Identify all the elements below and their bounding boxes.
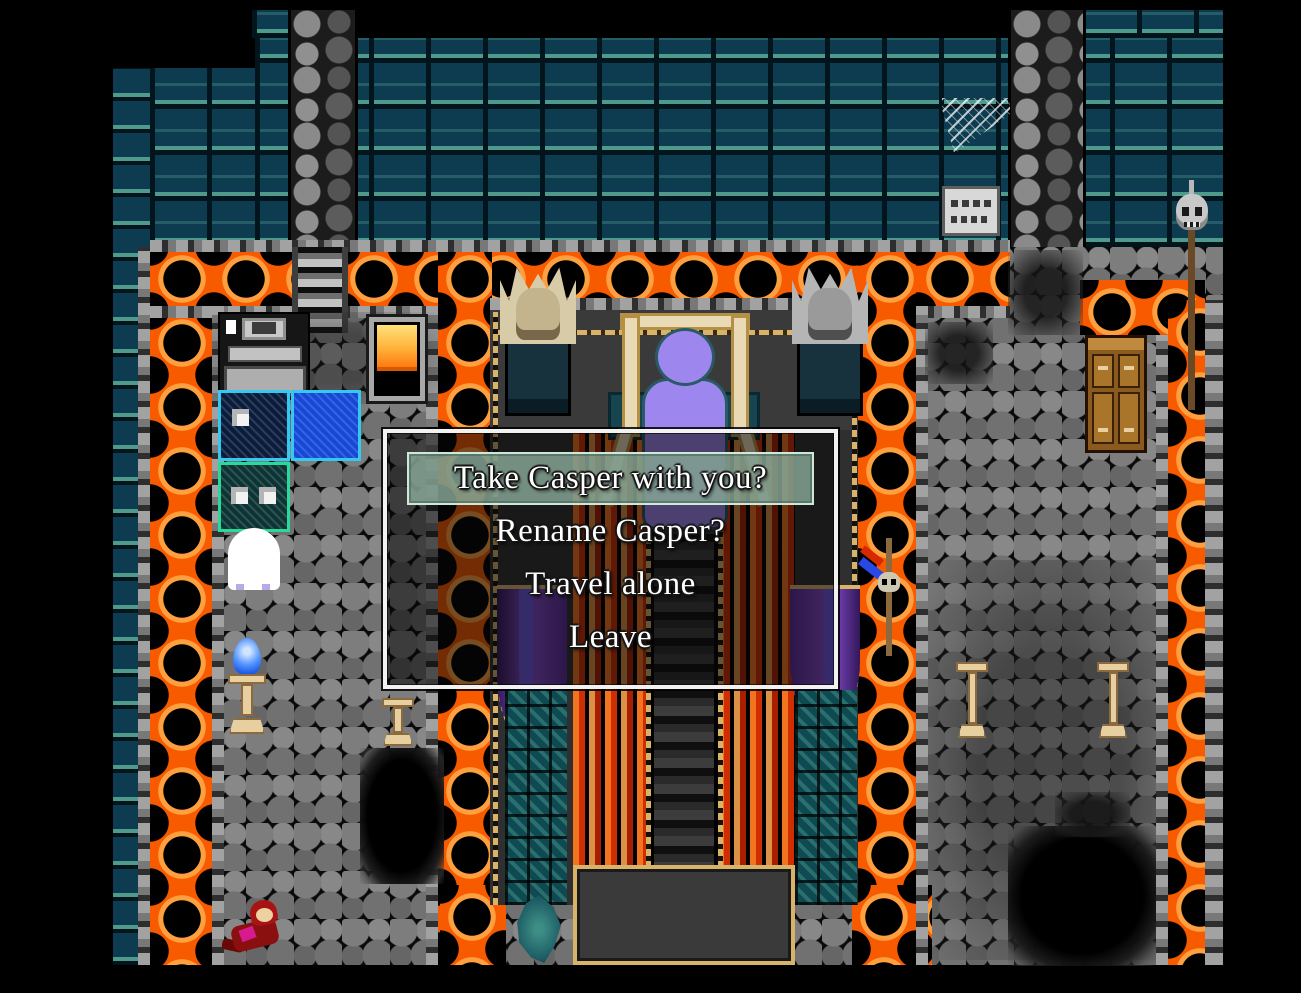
floor-edge: [916, 306, 928, 965]
stone-platform: [573, 865, 795, 965]
floor-edge: [150, 240, 1010, 252]
floor-pit-right: [1008, 826, 1156, 966]
stand-base: [383, 733, 413, 746]
furnace-fire: [377, 325, 417, 367]
stand-stem: [241, 684, 253, 716]
gargoyle-statue-left: [500, 266, 576, 416]
cabinet-top: [1088, 338, 1144, 350]
skull-eye: [882, 579, 887, 585]
cabinet-door: [1092, 392, 1114, 444]
stone-column-left: [288, 10, 358, 247]
throne-post-left: [622, 315, 640, 437]
fallen-body: [218, 896, 294, 962]
choice-dialog: Take Casper with you? Rename Casper? Tra…: [383, 429, 838, 689]
burn-mark: [925, 322, 993, 384]
furnace: [366, 314, 428, 404]
ghost-foot: [236, 584, 244, 590]
stand-top: [382, 698, 414, 707]
stand-base: [958, 724, 986, 738]
cabinet-handle: [1124, 366, 1134, 370]
menu-option-leave[interactable]: Leave: [407, 611, 814, 664]
statue-body: [516, 288, 560, 340]
cabinet-handle: [1124, 428, 1134, 432]
cabinet-door: [1118, 392, 1140, 444]
skull-eye: [1182, 207, 1189, 216]
cabinet-door: [1092, 354, 1114, 388]
stand-stem: [968, 672, 977, 724]
menu-option-travel-alone[interactable]: Travel alone: [407, 558, 814, 611]
piano-keybar: [228, 346, 302, 362]
gargoyle-statue-right: [792, 266, 868, 416]
skull-eye: [1195, 207, 1202, 216]
dialog-padding: [387, 433, 834, 452]
stand-stem: [1109, 672, 1118, 724]
statue-body: [808, 288, 852, 340]
lamp-pole: [1188, 210, 1195, 410]
ghost-foot: [262, 584, 270, 590]
skull-teeth: [1184, 222, 1200, 227]
teal-brick-wall-top-notch: [252, 10, 290, 38]
teal-brick-wall-left: [150, 68, 255, 247]
floor-pit-left: [360, 748, 444, 884]
purple-figure-head: [655, 328, 715, 386]
candle-stand-lit: [226, 674, 268, 736]
cabinet-door: [1118, 354, 1140, 388]
candle-stand: [955, 662, 989, 740]
stand-top: [956, 662, 988, 672]
piano-lid-inset: [252, 322, 276, 334]
skull-eye: [891, 579, 896, 585]
map-marker: [259, 487, 276, 504]
piano-key: [226, 320, 236, 334]
lava-moat-left: [150, 247, 212, 965]
skull-spear: [858, 538, 910, 658]
menu-option-take-casper[interactable]: Take Casper with you?: [407, 452, 814, 505]
game-screen: Take Casper with you? Rename Casper? Tra…: [0, 0, 1301, 993]
stand-stem: [393, 707, 403, 733]
stand-base: [1099, 724, 1127, 738]
stand-top: [1097, 662, 1129, 672]
teal-pillar-right: [795, 690, 857, 905]
spear-skull-icon: [878, 572, 900, 592]
piano: [218, 312, 310, 400]
wall-sign: [942, 186, 1000, 236]
map-table-navy: [218, 390, 290, 461]
lamp-skull-icon: [1176, 194, 1208, 230]
candle-stand: [381, 698, 415, 746]
spear-pole: [886, 538, 892, 656]
body-face: [256, 908, 273, 922]
burn-mark: [1055, 792, 1130, 837]
menu-option-rename-casper[interactable]: Rename Casper?: [407, 505, 814, 558]
skull-lamp: [1172, 180, 1212, 410]
cabinet-handle: [1098, 366, 1108, 370]
sign-text-row: [951, 216, 991, 223]
wooden-cabinet: [1085, 335, 1147, 453]
stand-top: [228, 674, 266, 684]
ghost: [228, 528, 280, 590]
stand-base: [229, 718, 265, 734]
cabinet-handle: [1098, 428, 1108, 432]
candle-stand: [1096, 662, 1130, 740]
throne-post-right: [731, 315, 749, 437]
map-marker: [231, 487, 248, 504]
sign-text-row: [951, 200, 991, 207]
floor-edge: [916, 306, 1010, 318]
teal-brick-wall-top-right: [1080, 10, 1223, 38]
teal-pillar-left: [505, 690, 567, 905]
map-marker: [232, 409, 249, 426]
floor-edge: [1156, 335, 1168, 965]
map-table-teal: [218, 462, 290, 532]
column-shadow: [1008, 250, 1083, 335]
map-table-blue: [291, 390, 361, 461]
stone-column-right: [1008, 10, 1086, 247]
floor-edge: [138, 247, 150, 965]
